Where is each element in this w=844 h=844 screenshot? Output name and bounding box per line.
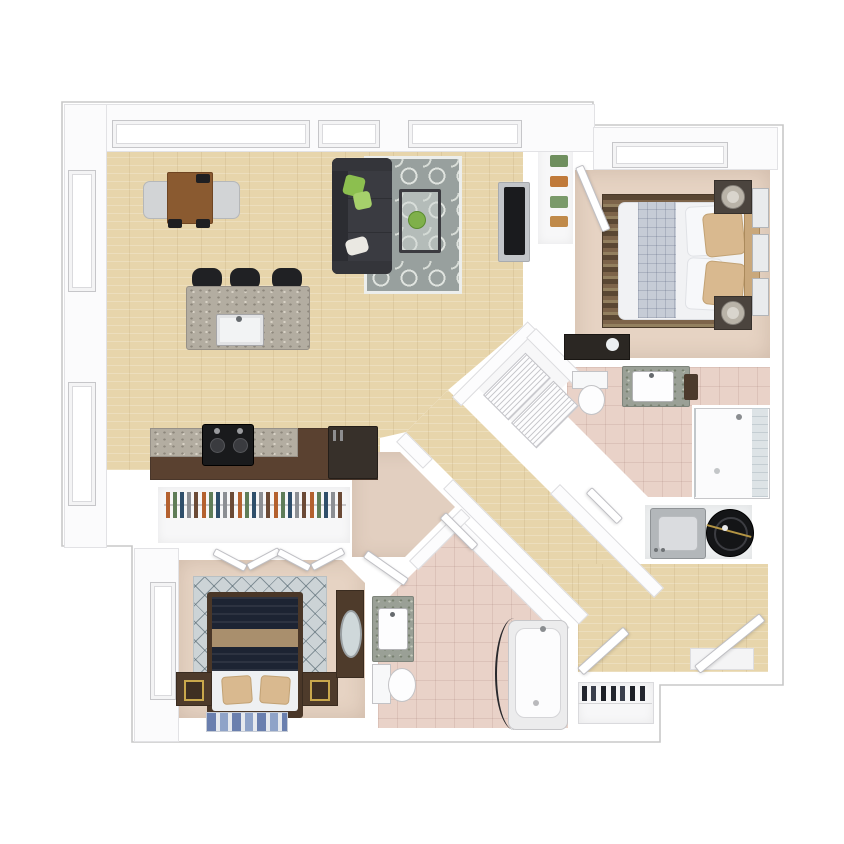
master-pillow-tan-1 [221, 675, 253, 705]
dryer-dot [722, 525, 728, 531]
range-burner-2 [233, 438, 248, 453]
washer-lid [658, 516, 698, 551]
refrigerator-handle-2 [340, 430, 343, 441]
sofa-pillow-green-2 [352, 190, 372, 210]
wall-frame-2 [752, 234, 769, 272]
sofa-armrest-bottom [332, 261, 392, 274]
sofa-seam-2 [348, 232, 392, 233]
bedroom2-pillow-tan-1 [702, 210, 746, 258]
sofa-armrest-top [332, 158, 392, 171]
linen-stack-3 [550, 196, 568, 208]
shower-head [736, 414, 742, 420]
linen-stack-2 [550, 176, 568, 187]
bedroom2-window [612, 142, 728, 168]
linen-stack-1 [550, 155, 568, 167]
tub-shower-head [540, 626, 546, 632]
living-window-top-right [408, 120, 522, 148]
living-window-left-lower [68, 382, 96, 506]
living-window-left-upper [68, 170, 96, 292]
dining-chair-accent-3 [196, 219, 210, 228]
washer-dial-2 [661, 548, 665, 552]
master-toilet-bowl [388, 668, 416, 702]
coffee-table-plant [408, 211, 426, 229]
island-faucet [236, 316, 242, 322]
master-bed-band [212, 629, 298, 647]
vanity-towel [684, 374, 698, 400]
range-knob-1 [214, 428, 220, 434]
master-nightstand-right-frame [310, 680, 330, 701]
master-blue-rug [206, 712, 288, 732]
master-bedroom-window [150, 582, 176, 700]
shoe-shelf-line [578, 703, 652, 704]
master-nightstand-left-frame [184, 680, 204, 701]
living-window-top-left [112, 120, 310, 148]
refrigerator-handle-1 [333, 430, 336, 441]
tv-screen [504, 187, 525, 255]
linen-stack-4 [550, 216, 568, 227]
bedroom2-console [564, 334, 630, 360]
dresser-oval-mirror [340, 610, 362, 658]
range-burner-1 [210, 438, 225, 453]
shoe-row [582, 686, 648, 701]
hall-vanity-faucet [649, 373, 654, 378]
bedroom2-lamp-bottom [721, 301, 745, 325]
living-window-top-mid [318, 120, 380, 148]
master-vanity-faucet [390, 612, 395, 617]
dining-chair-accent-1 [196, 174, 210, 183]
shower-curtain-rod [495, 618, 527, 730]
hall-toilet-bowl [578, 385, 605, 415]
floor-plan-canvas [0, 0, 844, 844]
range-knob-2 [237, 428, 243, 434]
console-bowl [606, 338, 619, 351]
hanging-clothes [166, 492, 346, 518]
shower-glass [694, 408, 696, 497]
shower-tile-wall [752, 408, 768, 497]
bedroom2-lamp-top [721, 185, 745, 209]
bedroom2-blanket [638, 202, 676, 318]
dining-chair-accent-2 [168, 219, 182, 228]
wall-frame-1 [752, 188, 769, 228]
wall-frame-3 [752, 278, 769, 316]
master-pillow-tan-2 [259, 675, 291, 705]
washer-dial-1 [654, 548, 658, 552]
bathtub-drain [533, 700, 539, 706]
shower-drain [714, 468, 720, 474]
